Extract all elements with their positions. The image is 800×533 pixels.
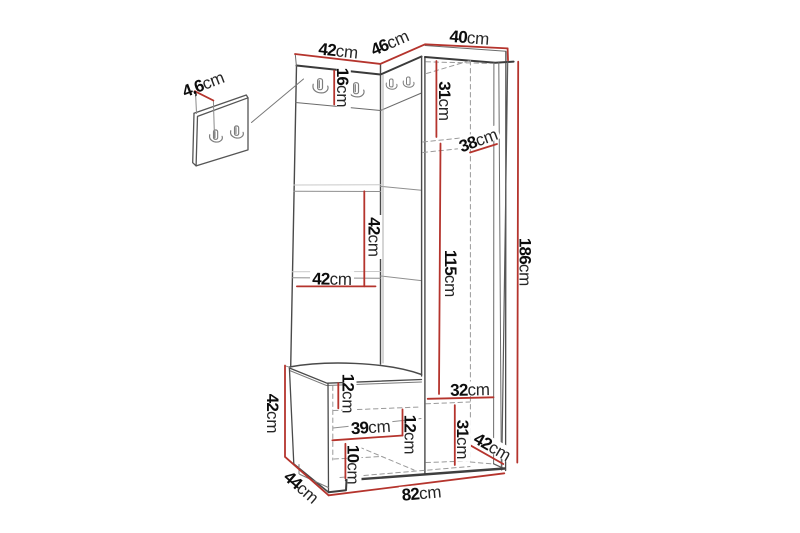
svg-text:12cm: 12cm bbox=[339, 374, 358, 414]
svg-text:31cm: 31cm bbox=[435, 81, 454, 121]
svg-text:12cm: 12cm bbox=[401, 415, 420, 455]
svg-text:42cm: 42cm bbox=[263, 394, 282, 434]
svg-text:31cm: 31cm bbox=[453, 420, 472, 460]
svg-text:32cm: 32cm bbox=[450, 380, 490, 400]
svg-text:42cm: 42cm bbox=[312, 269, 352, 289]
svg-text:186cm: 186cm bbox=[515, 238, 534, 286]
svg-text:82cm: 82cm bbox=[401, 482, 442, 504]
svg-text:115cm: 115cm bbox=[441, 250, 460, 297]
svg-text:42cm: 42cm bbox=[365, 217, 384, 257]
svg-text:10cm: 10cm bbox=[344, 445, 363, 485]
svg-text:40cm: 40cm bbox=[449, 27, 490, 49]
svg-text:39cm: 39cm bbox=[350, 417, 391, 438]
svg-text:16cm: 16cm bbox=[333, 68, 352, 108]
